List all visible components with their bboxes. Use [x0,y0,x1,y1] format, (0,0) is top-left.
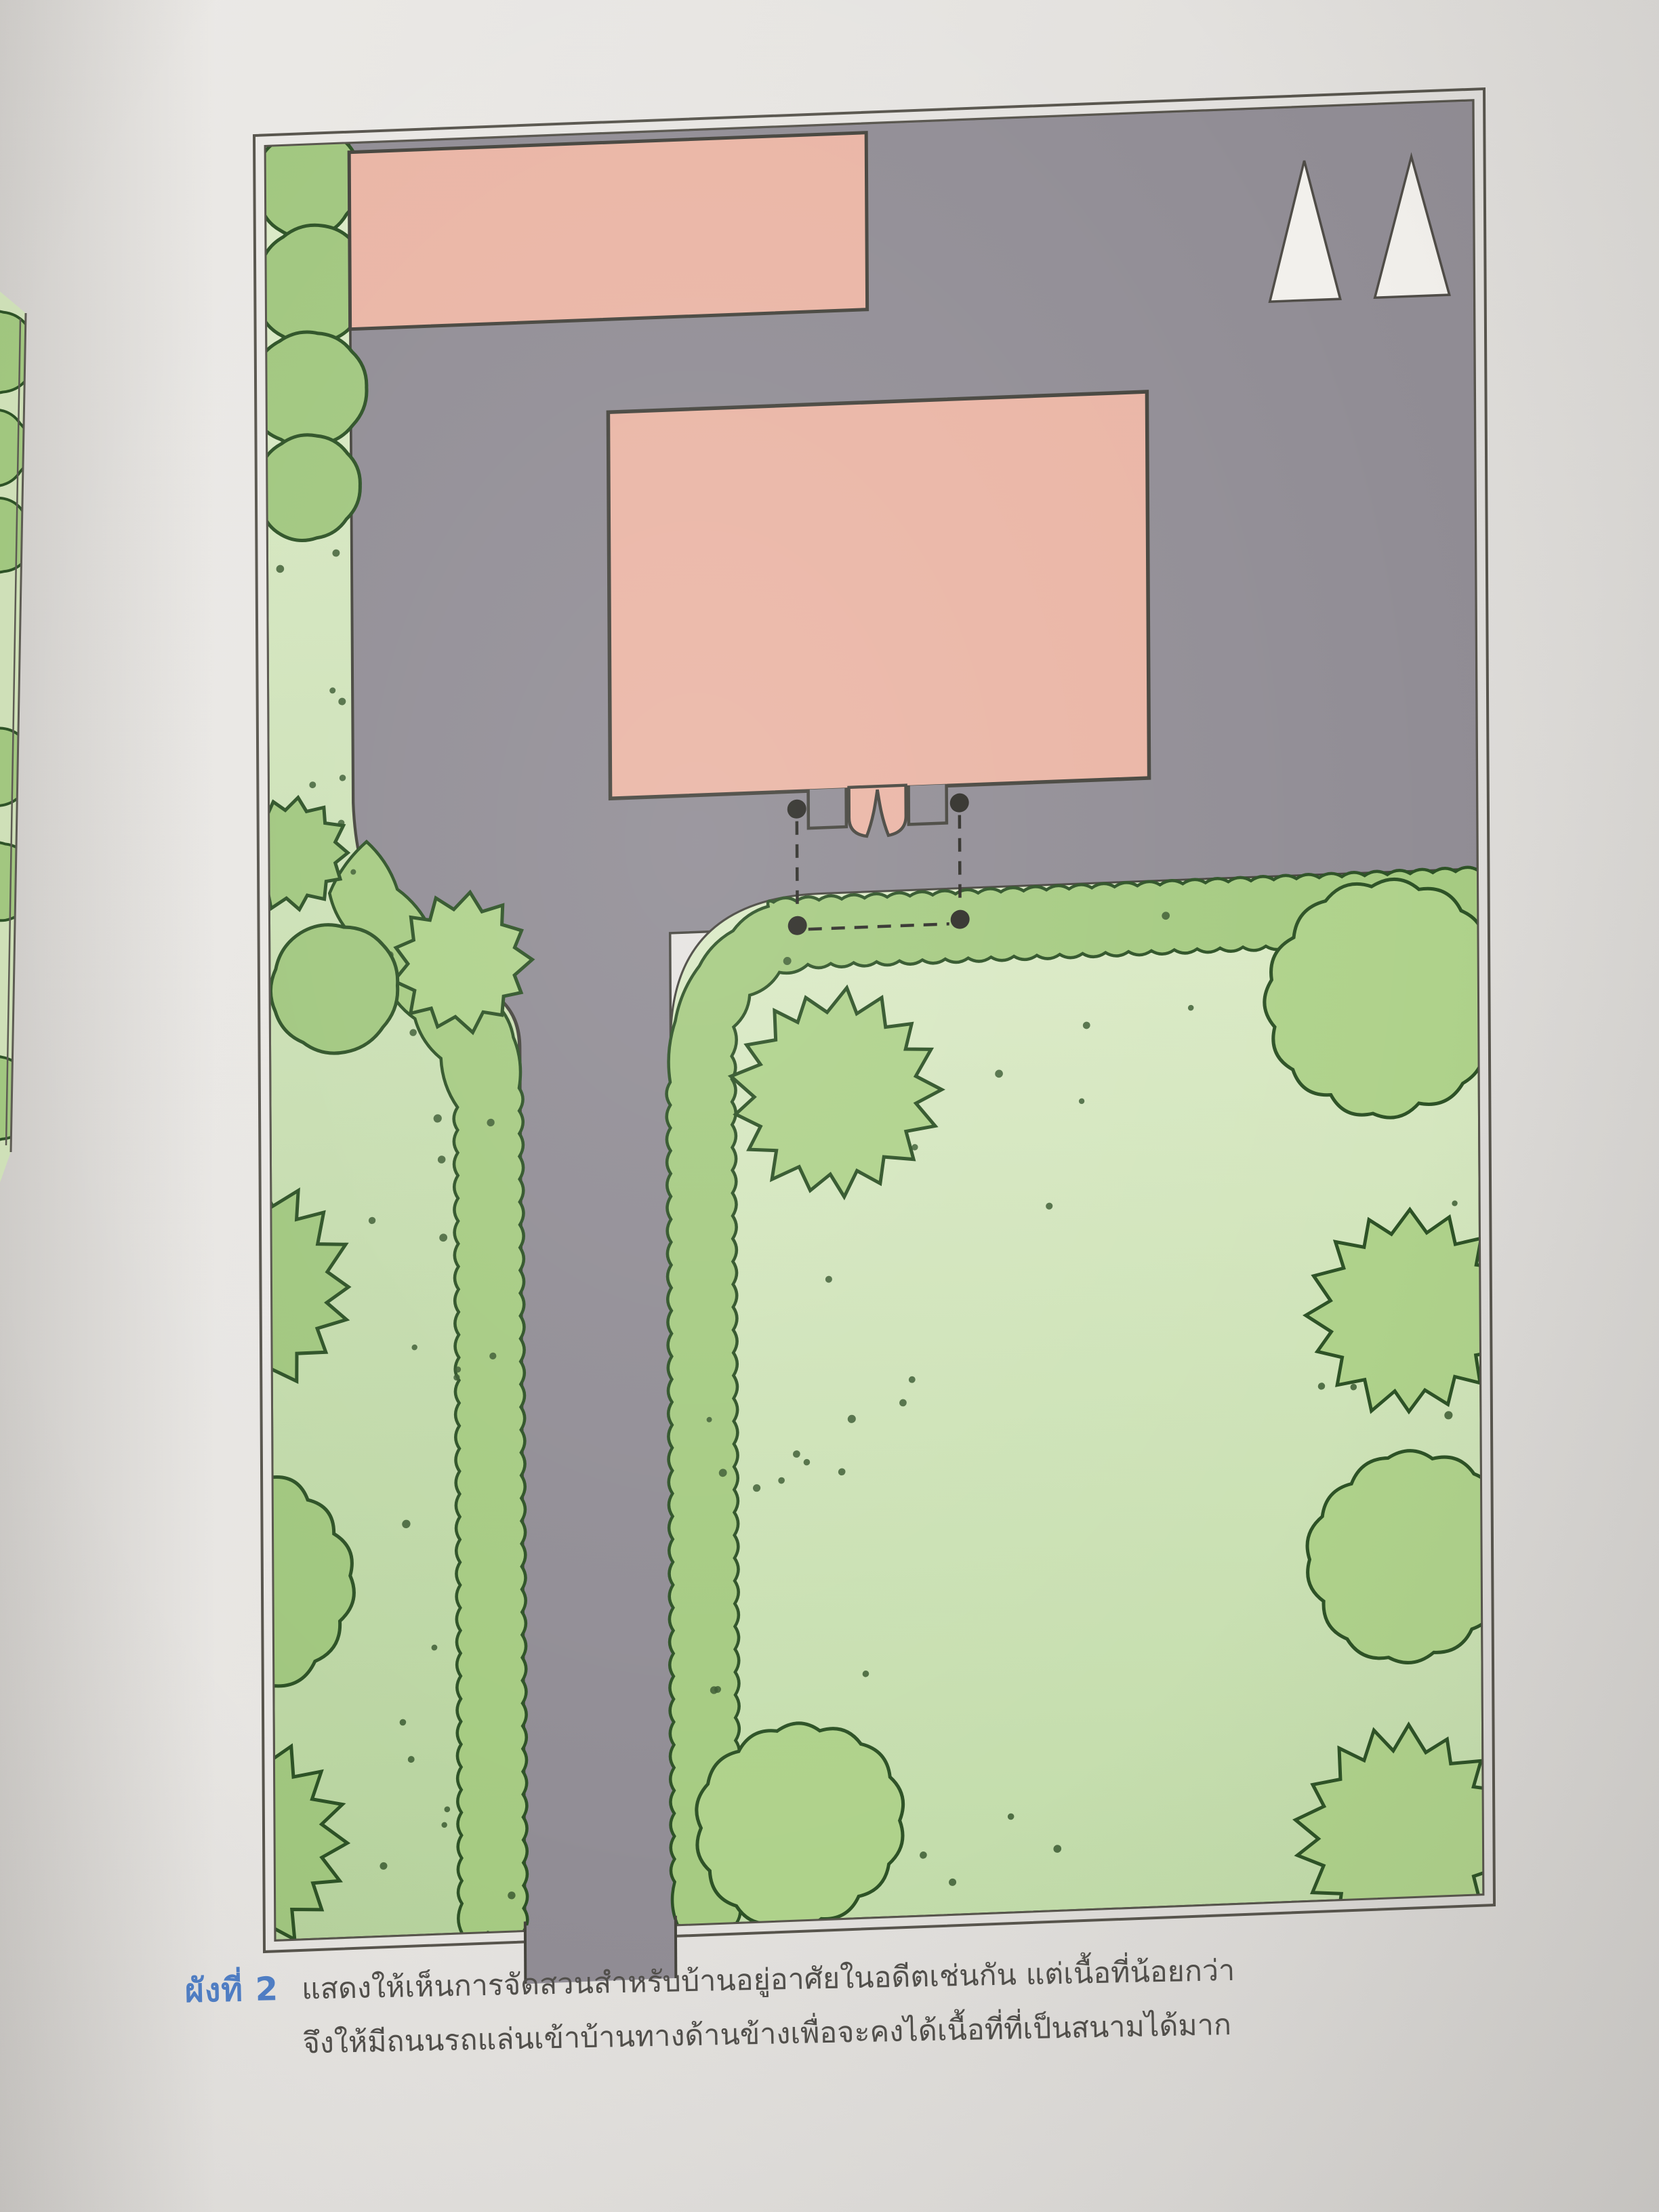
book-page-photo: { "figure": { "label": "ผังที่ 2", "labe… [0,0,1659,2212]
figure-label: ผังที่ 2 [184,1963,279,2018]
garden-plan-figure [0,0,1659,2212]
entrance-notch-2 [909,784,947,824]
figure-caption-text: แสดงให้เห็นการจัดสวนสำหรับบ้านอยู่อาศัยใ… [301,1944,1236,2071]
house [608,392,1149,798]
site-plan [111,84,1512,1999]
garage-slab [349,133,867,329]
opposite-page-edge [0,291,39,1183]
entrance-notch-1 [808,788,846,828]
